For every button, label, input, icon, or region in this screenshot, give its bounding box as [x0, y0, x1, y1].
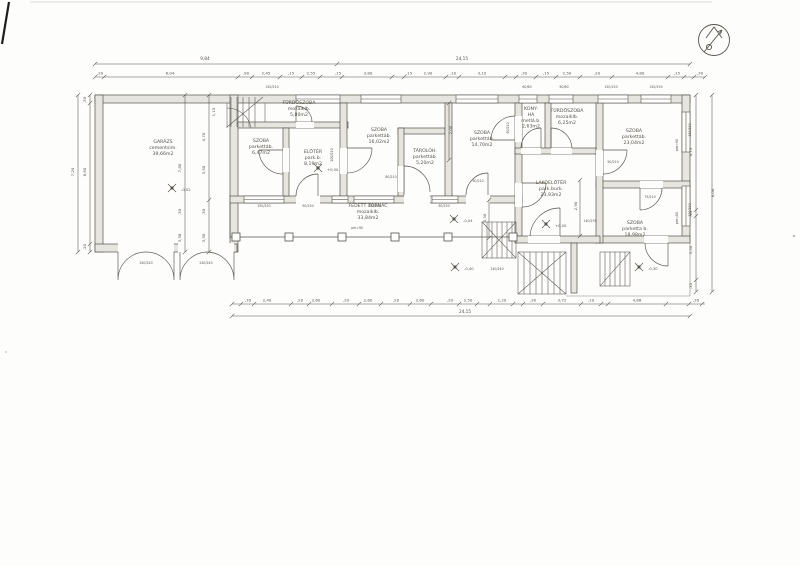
- dimension-label: 2,60: [416, 298, 425, 303]
- dimension-line: [93, 75, 707, 79]
- size-annotation: 150/150: [688, 123, 692, 136]
- dimension-label: 24,15: [459, 309, 472, 315]
- room-label-furdoszoba2: FÜRDŐSZOBAmozaiklb.6,25m2: [551, 107, 585, 126]
- dimension-label: 7,20: [70, 167, 75, 176]
- room-label-furdoszoba1: FÜRDŐSZOBAmozaiklb.5,80m2: [283, 99, 317, 118]
- level-marker-dot: [545, 223, 548, 226]
- dimension-label: 4,70: [201, 132, 206, 141]
- size-annotation: 90/210: [506, 122, 510, 133]
- dimension-label: ,10: [450, 71, 457, 76]
- level-marker-value: -0,30: [648, 267, 658, 271]
- dimension-label: ,20: [343, 298, 350, 303]
- dimension-label: ,30: [693, 298, 700, 303]
- level-marker-dot: [454, 266, 457, 269]
- size-annotation: 100/210: [330, 148, 334, 161]
- dimension-label: ,15: [543, 71, 550, 76]
- dimension-label: 1,15: [211, 107, 216, 116]
- dimension-label: 2,00: [448, 125, 453, 134]
- size-annotation: pm=90: [675, 139, 679, 151]
- room-label-garazs: GARÁZScementsim.39,66m2: [149, 138, 177, 157]
- room-label-konyha: KONY-HAmetlá.b.2,63m2: [521, 106, 540, 130]
- size-annotation: 150/210: [265, 85, 278, 89]
- porch-colonnade: [230, 203, 690, 296]
- dimension-label: ,90: [243, 71, 250, 76]
- dimension-label: 8,00: [710, 188, 715, 197]
- dimension-label: 2,50: [563, 71, 572, 76]
- room-label-szoba5: SZOBAparketta b.18,98m2: [622, 220, 648, 238]
- north-compass-icon: [699, 25, 730, 56]
- size-annotation: 90/210: [607, 160, 618, 164]
- dimension-label: ,30: [245, 298, 252, 303]
- level-marker-value: -0,02: [181, 188, 191, 192]
- room-label-szoba4: SZOBAparkettáb.23,04m2: [622, 128, 646, 146]
- level-marker-dot: [453, 218, 456, 221]
- dimension-label: 3,30: [201, 233, 206, 242]
- room-label-lakoeloter: LAKÓELŐTÉRpark.burk.23,93m2: [536, 178, 568, 198]
- dimension-line: [76, 93, 80, 254]
- room-label-szoba1: SZOBAparkettáb.6,47m2: [249, 138, 273, 156]
- level-marker-value: +0,00: [555, 224, 567, 228]
- dimension-label: 6,04: [166, 71, 175, 76]
- dimension-label: ,15: [288, 71, 295, 76]
- dimension-label: 6,60: [82, 167, 87, 176]
- dimension-label: 3,10: [478, 71, 487, 76]
- size-annotation: pm=90: [351, 226, 363, 230]
- size-annotation: 90/210: [472, 179, 483, 183]
- size-annotation: 140/240: [490, 267, 503, 271]
- dimension-label: ,30: [201, 208, 206, 215]
- size-annotation: 90/150: [302, 204, 313, 208]
- room-label-szoba2: SZOBAparkettáb.16,02m2: [367, 127, 391, 145]
- size-annotation: 140/230: [583, 219, 596, 223]
- size-annotation: 75/210: [644, 195, 655, 199]
- dimension-label: ,20: [447, 298, 454, 303]
- dimension-label: 3,50: [688, 245, 693, 254]
- room-label-taroloh: TÁROLÓH.parkettáb.5,20m2: [412, 147, 437, 166]
- size-annotation: 80/210: [385, 175, 396, 179]
- floor-plan-drawing: 9,8424,15,206,04,902,45,152,55,153,80,15…: [0, 0, 800, 565]
- dimension-label: 3,80: [364, 71, 373, 76]
- dimension-label: 9,84: [200, 56, 210, 62]
- dimension-label: 3,30: [482, 213, 487, 222]
- size-annotation: 150/150: [257, 204, 270, 208]
- dimension-label: ,20: [82, 243, 87, 250]
- dimension-label: 24,15: [456, 56, 469, 62]
- size-annotation: 150/150: [649, 85, 662, 89]
- dimension-label: ,20: [97, 71, 104, 76]
- level-marker-dot: [171, 187, 174, 190]
- dimension-label: ,20: [594, 71, 601, 76]
- dimension-label: 2,60: [364, 298, 373, 303]
- room-label-eloter: ELŐTÉRpark.b.8,19m2: [304, 147, 323, 167]
- dimension-label: ,30: [521, 71, 528, 76]
- level-marker-dot: [638, 266, 641, 269]
- size-annotation: pm=80: [675, 212, 679, 224]
- scanned-floor-plan-page: 9,8424,15,206,04,902,45,152,55,153,80,15…: [0, 0, 800, 565]
- dimension-label: ,15: [406, 71, 413, 76]
- size-annotation: 90/150: [438, 204, 449, 208]
- dimension-label: 4,80: [636, 71, 645, 76]
- dimension-label: 1,20: [498, 298, 507, 303]
- dimension-line: [183, 93, 187, 254]
- dimension-label: 2,50: [464, 298, 473, 303]
- size-annotation: 60/60: [522, 85, 531, 89]
- dimension-label: ,30: [530, 298, 537, 303]
- dimension-label: ,10: [588, 298, 595, 303]
- dimension-label: 2,60: [312, 298, 321, 303]
- dimension-label: ,30: [177, 208, 182, 215]
- dimension-label: 3,50: [201, 165, 206, 174]
- dimension-label: 3,72: [558, 298, 567, 303]
- dimension-label: 2,90: [424, 71, 433, 76]
- dimension-label: 2,55: [307, 71, 316, 76]
- dimension-label: 2,90: [573, 201, 578, 210]
- dimension-label: 4,73: [688, 147, 693, 156]
- dimension-label: ,30: [697, 71, 704, 76]
- level-marker-value: +0,00: [327, 168, 339, 172]
- size-annotation: 150/150: [367, 204, 380, 208]
- dimension-label: 2,45: [262, 71, 271, 76]
- size-annotation: 240/240: [199, 261, 212, 265]
- dimension-label: ,30: [82, 96, 87, 103]
- dimension-label: ,35: [688, 282, 693, 289]
- room-label-szoba3: SZOBAparkettáb.14,70m2: [470, 130, 494, 148]
- dimension-label: ,15: [674, 71, 681, 76]
- dimension-label: 4,88: [633, 298, 642, 303]
- dimension-line: [578, 178, 582, 238]
- dimension-label: ,20: [297, 298, 304, 303]
- walls-layer: [95, 95, 690, 293]
- dimension-label: 7,80: [177, 163, 182, 172]
- doors-layer: [118, 106, 668, 280]
- dimension-label: 2,40: [263, 298, 272, 303]
- size-annotation: 150/150: [604, 85, 617, 89]
- level-marker-dot: [317, 167, 320, 170]
- dimension-label: ,15: [335, 71, 342, 76]
- dimension-line: [93, 62, 692, 66]
- size-annotation: 240/240: [139, 261, 152, 265]
- size-annotation: 120/230: [688, 203, 692, 216]
- dimension-line: [694, 93, 698, 294]
- level-marker-value: -0,40: [464, 267, 474, 271]
- dimension-label: ,20: [393, 298, 400, 303]
- dimension-line: [88, 93, 92, 254]
- dimension-label: 3,38: [177, 233, 182, 242]
- dimension-line: [487, 198, 491, 240]
- level-marker-value: -0,04: [463, 219, 473, 223]
- size-annotation: 90/60: [559, 85, 568, 89]
